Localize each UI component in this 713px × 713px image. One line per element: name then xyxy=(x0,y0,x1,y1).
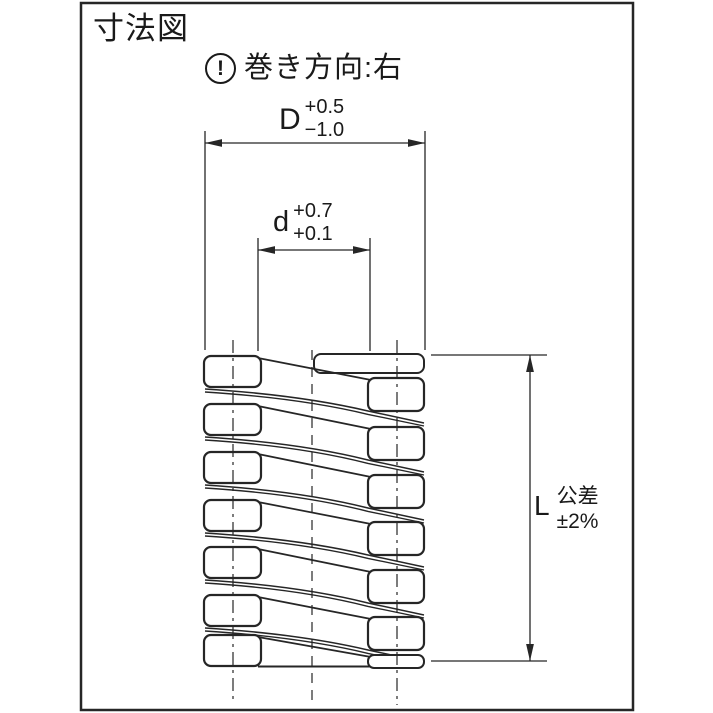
inner-diameter-upper-tolerance: +0.7 xyxy=(293,200,332,223)
winding-direction-note: ! 巻き方向:右 xyxy=(205,53,403,84)
outer-diameter-tolerance: +0.5 −1.0 xyxy=(305,96,344,142)
free-length-dimension: L 公差 ±2% xyxy=(534,484,599,534)
spring-drawing xyxy=(0,0,713,713)
outer-diameter-upper-tolerance: +0.5 xyxy=(305,96,344,119)
inner-diameter-lower-tolerance: +0.1 xyxy=(293,223,332,246)
inner-diameter-label: d xyxy=(273,200,289,237)
free-length-label: L xyxy=(534,484,550,520)
exclamation-icon: ! xyxy=(205,53,236,84)
inner-diameter-dimension: d +0.7 +0.1 xyxy=(273,200,333,246)
page-title: 寸法図 xyxy=(93,13,189,44)
tolerance-title: 公差 xyxy=(557,484,599,509)
outer-diameter-label: D xyxy=(279,96,301,135)
free-length-tolerance: 公差 ±2% xyxy=(557,484,599,534)
winding-direction-text: 巻き方向:右 xyxy=(244,54,403,83)
outer-diameter-dimension: D +0.5 −1.0 xyxy=(279,96,344,142)
inner-diameter-tolerance: +0.7 +0.1 xyxy=(293,200,332,246)
tolerance-value: ±2% xyxy=(557,509,599,534)
dimension-diagram: 寸法図 ! 巻き方向:右 D +0.5 −1.0 d +0.7 +0.1 L 公… xyxy=(0,0,713,713)
outer-diameter-lower-tolerance: −1.0 xyxy=(305,119,344,142)
